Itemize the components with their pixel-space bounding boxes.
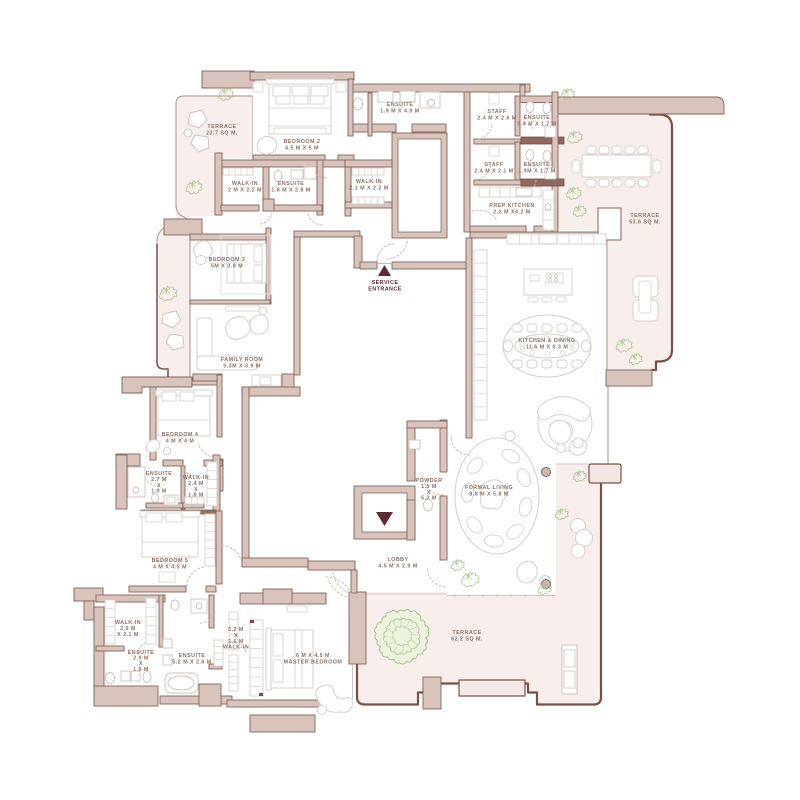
svg-text:PREP KITCHEN2.2 M X4.2 M: PREP KITCHEN2.2 M X4.2 M [489,203,534,215]
svg-text:BEDROOM 54 M X 4.5 M: BEDROOM 54 M X 4.5 M [152,558,189,570]
svg-text:TERRACE53.6 SQ M.: TERRACE53.6 SQ M. [629,213,661,225]
svg-text:BEDROOM 44 M X 4 M: BEDROOM 44 M X 4 M [162,432,199,444]
svg-text:FORMAL LIVING8.8 M X 5.8 M: FORMAL LIVING8.8 M X 5.8 M [465,485,513,497]
svg-text:BEDROOM 24.5 M X 5 M: BEDROOM 24.5 M X 5 M [284,139,321,151]
svg-text:BEDROOM 35M X 3.9 M: BEDROOM 35M X 3.9 M [209,257,246,269]
svg-text:TERRACE23.7 SQ M.: TERRACE23.7 SQ M. [206,124,238,136]
svg-text:ENSUITE1.9M X 1.7 M: ENSUITE1.9M X 1.7 M [518,162,556,174]
svg-text:TERRACE62.2 SQ M.: TERRACE62.2 SQ M. [451,630,483,642]
svg-text:FAMILY ROOM5.3M X 3.9 M: FAMILY ROOM5.3M X 3.9 M [221,357,263,369]
svg-text:SERVICEENTRANCE: SERVICEENTRANCE [368,280,402,292]
svg-text:WALK-IN2 M X 2.2 M: WALK-IN2 M X 2.2 M [228,181,262,193]
svg-text:KITCHEN & DINING11.6 M X 6.3 M: KITCHEN & DINING11.6 M X 6.3 M [519,338,576,350]
